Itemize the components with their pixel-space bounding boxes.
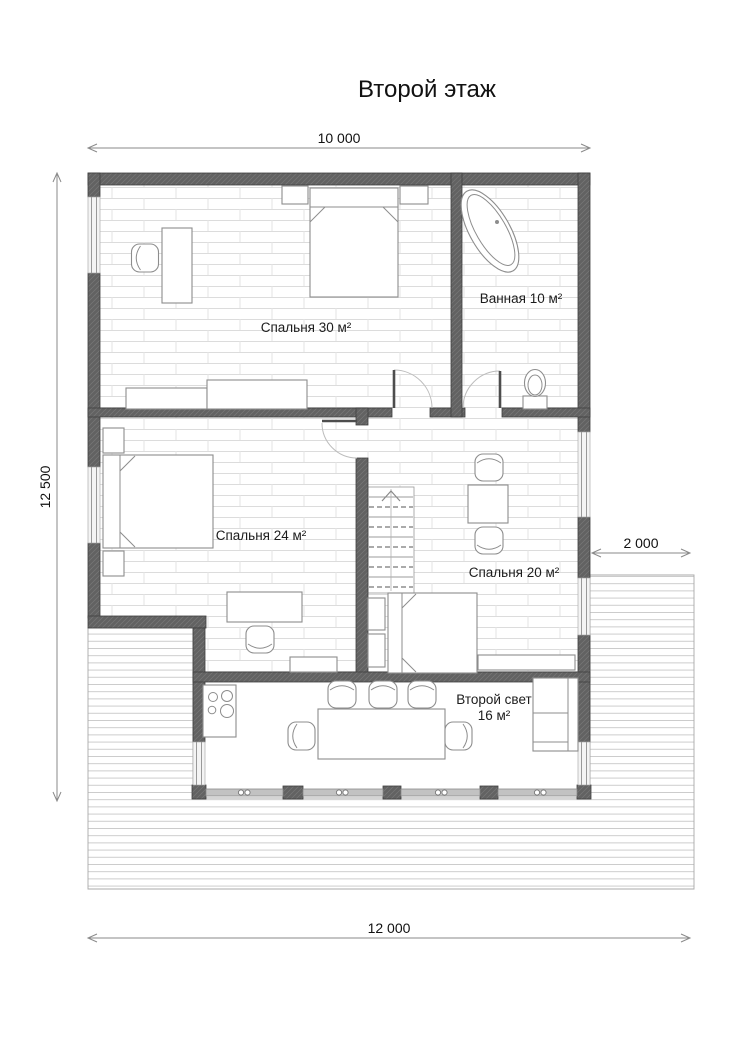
wall-stair-jamb — [356, 408, 368, 425]
room-label-bedroom-20: Спальня 20 м² — [469, 565, 560, 580]
room-label-second-light-area: 16 м² — [478, 708, 511, 723]
svg-text:12 000: 12 000 — [368, 920, 411, 936]
chair — [445, 722, 472, 750]
floor-plan-page: Второй этаж — [0, 0, 744, 1051]
railing-pillar — [383, 786, 401, 799]
wall-exterior-right — [578, 173, 590, 432]
chair — [408, 681, 436, 708]
chair — [369, 681, 397, 708]
chair — [246, 626, 274, 653]
staircase — [368, 487, 414, 593]
dresser — [290, 657, 337, 672]
dimension-right: 2 000 — [592, 535, 690, 557]
svg-text:10 000: 10 000 — [318, 130, 361, 146]
wall-corner-post — [577, 785, 591, 799]
wall-bathroom-left — [451, 173, 462, 417]
nightstand — [368, 634, 385, 667]
wall-exterior-right — [578, 517, 590, 578]
wall-stair-side — [356, 458, 368, 673]
chair — [328, 681, 356, 708]
wall-exterior-left — [88, 273, 100, 467]
window — [88, 467, 100, 543]
chair — [132, 244, 159, 272]
dresser — [478, 655, 575, 670]
chair — [288, 722, 315, 750]
window — [578, 578, 590, 635]
room-label-bedroom-30: Спальня 30 м² — [261, 320, 352, 335]
toilet — [523, 370, 547, 410]
window — [193, 742, 205, 785]
chair — [475, 454, 503, 481]
room-label-bedroom-24: Спальня 24 м² — [216, 528, 307, 543]
stove — [203, 685, 236, 737]
svg-text:2 000: 2 000 — [623, 535, 658, 551]
window — [578, 432, 590, 517]
nightstand — [282, 186, 308, 204]
nightstand — [103, 551, 124, 576]
double-bed — [388, 593, 477, 673]
nightstand — [368, 598, 385, 630]
desk — [162, 228, 192, 303]
wall-exterior-left — [88, 543, 100, 618]
svg-text:12 500: 12 500 — [37, 465, 53, 508]
dimension-top: 10 000 — [88, 130, 590, 152]
room-label-bathroom: Ванная 10 м² — [480, 291, 563, 306]
floor-plan-svg: Второй этаж — [0, 0, 744, 1051]
double-bed — [103, 455, 213, 548]
window — [578, 742, 590, 785]
dimension-left: 12 500 — [37, 173, 61, 801]
sofa — [533, 678, 578, 751]
dimension-bottom: 12 000 — [88, 920, 690, 942]
wall-exterior-left — [88, 173, 100, 197]
dresser — [126, 388, 207, 409]
wall-exterior-right — [578, 635, 590, 742]
page-title: Второй этаж — [358, 76, 496, 103]
dresser — [207, 380, 307, 409]
window — [88, 197, 100, 273]
railing-pillar — [480, 786, 498, 799]
room-label-second-light: Второй свет — [456, 692, 531, 707]
dining-table — [318, 709, 445, 759]
nightstand — [400, 186, 428, 204]
wall-exterior-step — [88, 616, 206, 628]
double-bed — [310, 188, 398, 297]
nightstand — [103, 428, 124, 453]
railing-pillar — [283, 786, 303, 799]
wall-corner-post — [192, 785, 206, 799]
table — [468, 485, 508, 523]
wall-exterior-top — [88, 173, 590, 185]
desk — [227, 592, 302, 622]
chair — [475, 527, 503, 554]
second-light-furniture — [203, 678, 578, 759]
